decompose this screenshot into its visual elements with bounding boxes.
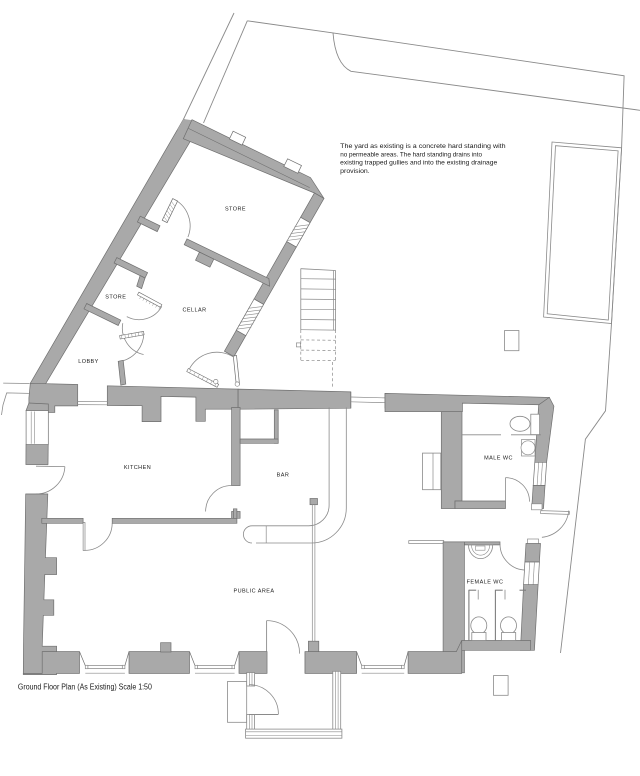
- svg-text:STORE: STORE: [225, 207, 246, 213]
- svg-text:LOBBY: LOBBY: [78, 359, 99, 365]
- svg-text:BAR: BAR: [277, 473, 290, 479]
- svg-text:FEMALE WC: FEMALE WC: [467, 580, 504, 586]
- svg-text:PUBLIC AREA: PUBLIC AREA: [233, 589, 274, 595]
- svg-text:provision.: provision.: [340, 168, 370, 175]
- svg-text:MALE WC: MALE WC: [484, 456, 513, 462]
- svg-text:no permeable areas. The hard s: no permeable areas. The hard standing dr…: [340, 151, 482, 158]
- svg-text:Ground Floor Plan (As Existing: Ground Floor Plan (As Existing) Scale 1:…: [18, 683, 153, 692]
- svg-text:STORE: STORE: [105, 295, 126, 301]
- svg-text:CELLAR: CELLAR: [182, 308, 206, 314]
- svg-text:The yard as existing is a conc: The yard as existing is a concrete hard …: [340, 143, 506, 150]
- svg-text:existing trapped gullies and i: existing trapped gullies and into the ex…: [340, 160, 497, 167]
- svg-text:KITCHEN: KITCHEN: [124, 465, 151, 471]
